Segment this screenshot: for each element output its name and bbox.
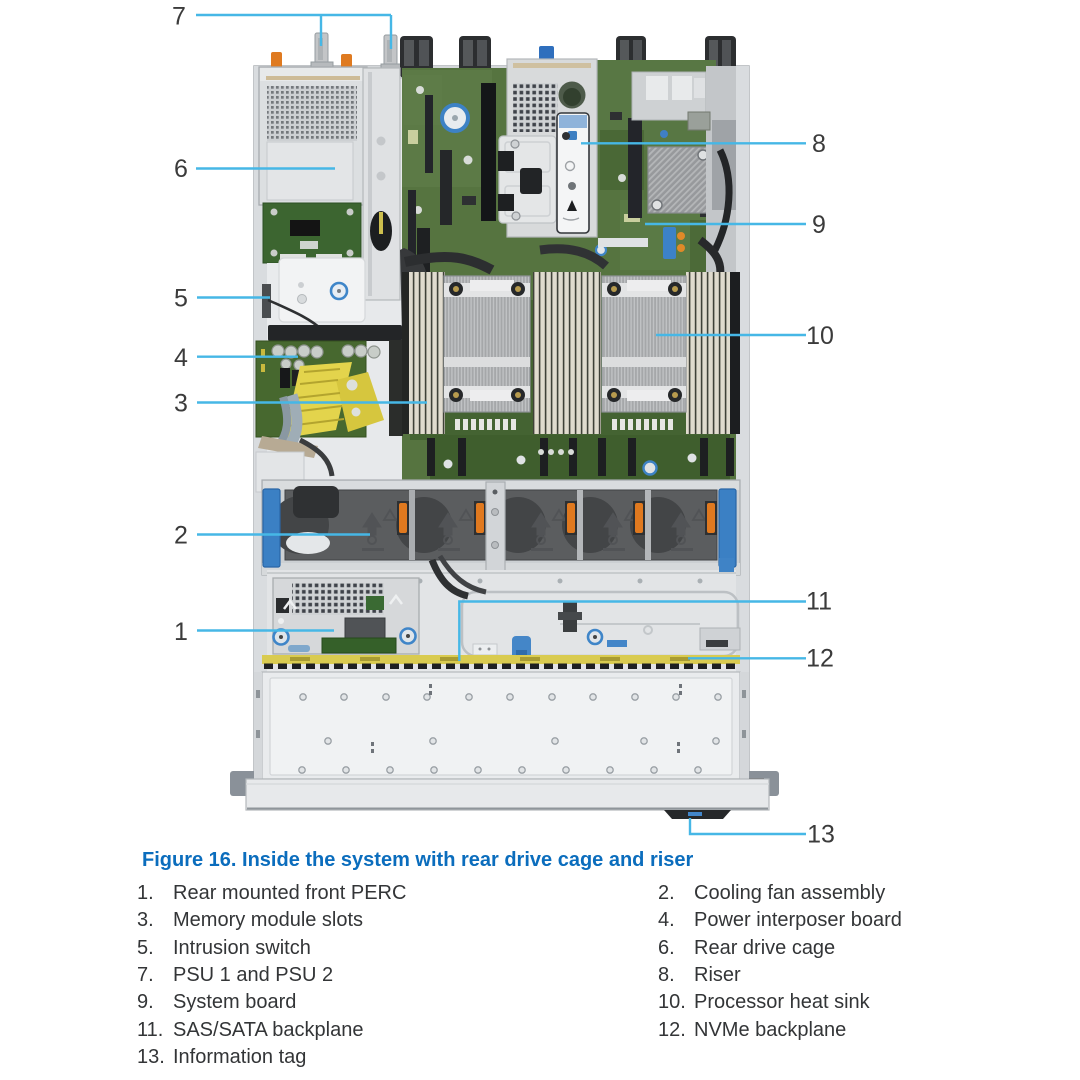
- svg-text:3: 3: [174, 390, 188, 418]
- svg-text:1: 1: [174, 618, 188, 646]
- svg-text:4: 4: [174, 344, 188, 372]
- svg-text:2: 2: [174, 522, 188, 550]
- svg-text:11: 11: [806, 588, 832, 616]
- svg-text:8: 8: [812, 130, 826, 158]
- svg-text:12: 12: [806, 645, 834, 673]
- svg-text:6: 6: [174, 155, 188, 183]
- svg-text:13: 13: [807, 821, 835, 849]
- svg-text:9: 9: [812, 211, 826, 239]
- svg-text:5: 5: [174, 285, 188, 313]
- svg-text:10: 10: [806, 322, 834, 350]
- svg-text:7: 7: [172, 3, 186, 31]
